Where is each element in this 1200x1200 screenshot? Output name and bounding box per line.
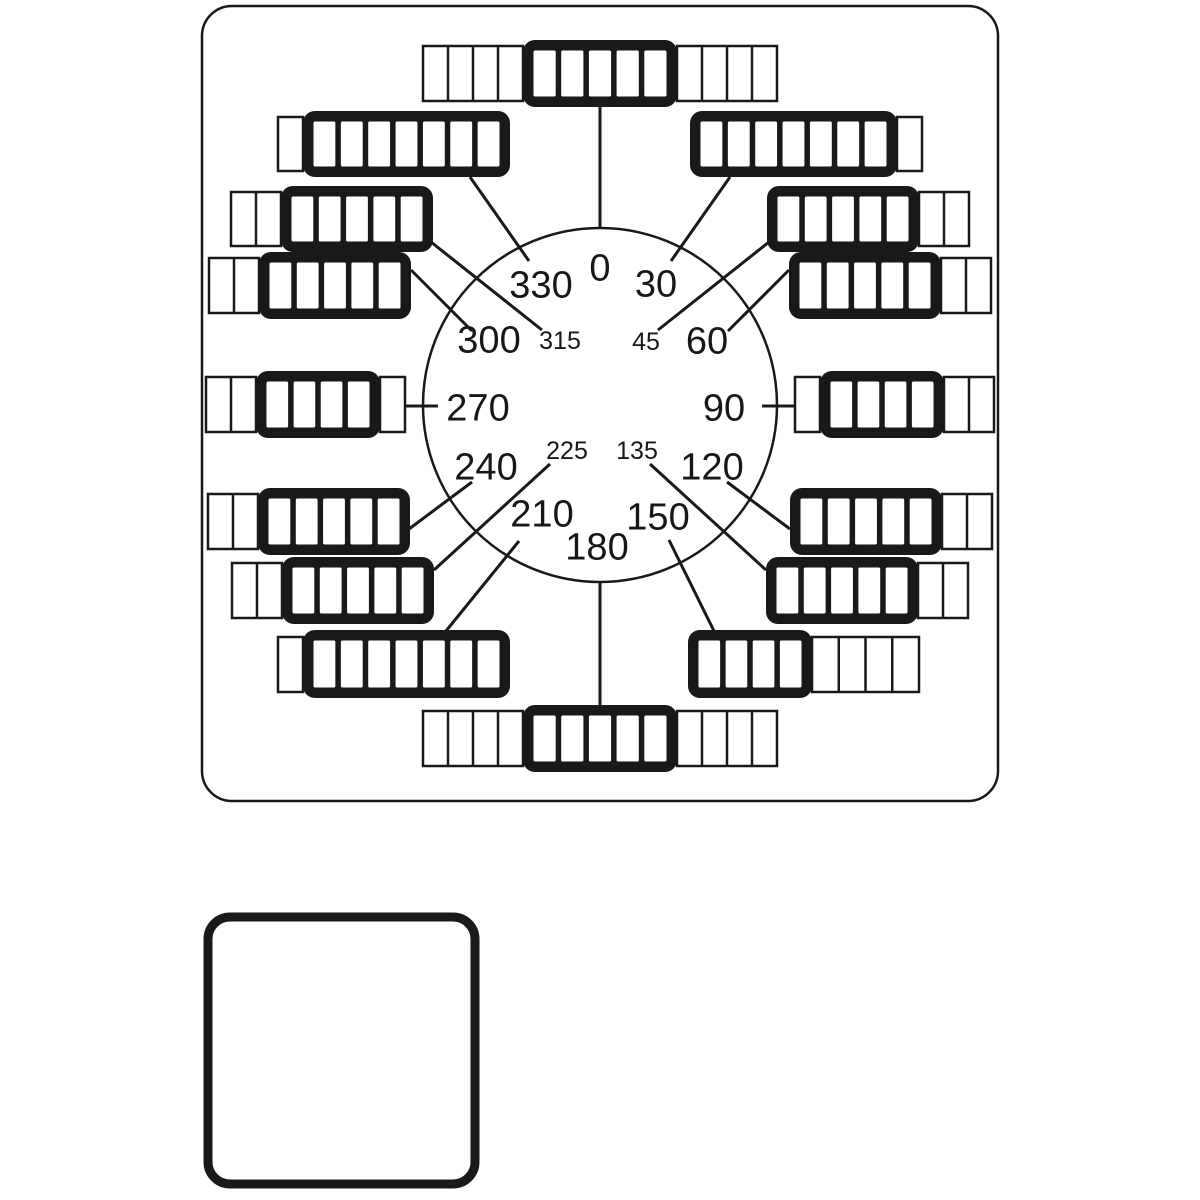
cell <box>701 122 723 167</box>
label-strip-thick-30 <box>690 111 897 177</box>
label-strip-thin-225 <box>232 563 282 618</box>
angle-label-315: 315 <box>539 327 581 355</box>
cell <box>726 641 748 688</box>
label-strip-thick-315 <box>281 186 433 252</box>
angle-label-225: 225 <box>546 437 588 465</box>
cell <box>320 568 342 614</box>
cell <box>912 382 934 428</box>
cell <box>324 263 346 309</box>
thin-strip-frame <box>897 117 922 171</box>
cell <box>341 641 363 688</box>
cell <box>589 51 611 97</box>
cell <box>347 568 369 614</box>
label-strip-thick-60 <box>789 252 941 319</box>
cell <box>859 197 881 242</box>
angle-label-180: 180 <box>565 526 628 568</box>
cell <box>314 122 336 167</box>
cell <box>617 716 639 762</box>
angle-label-135: 135 <box>616 437 658 465</box>
legend-square <box>208 917 475 1184</box>
cell <box>909 263 931 309</box>
angle-label-0: 0 <box>589 247 610 289</box>
cell <box>269 499 291 545</box>
cell <box>368 641 390 688</box>
cell <box>402 568 424 614</box>
cell <box>804 568 826 614</box>
label-strip-thin-240 <box>208 494 258 549</box>
switch-faceplate-diagram: 0304560901201351501802102252402703003153… <box>0 0 1200 1200</box>
cell <box>881 263 903 309</box>
cell <box>323 499 345 545</box>
cell <box>827 263 849 309</box>
label-strip-thick-180 <box>523 705 677 772</box>
label-strip-thick-0 <box>523 40 677 107</box>
cell <box>832 197 854 242</box>
cell <box>294 382 316 428</box>
cell <box>800 263 822 309</box>
cell <box>267 382 289 428</box>
angle-label-45: 45 <box>632 328 660 356</box>
label-strip-thick-210 <box>303 630 510 698</box>
label-strip-thin-45 <box>919 192 969 246</box>
thin-strip-frame <box>380 377 405 432</box>
label-strip-thin-120 <box>942 494 992 549</box>
cell <box>801 499 823 545</box>
cell <box>780 641 802 688</box>
cell <box>292 197 314 242</box>
label-strip-thin-0 <box>677 46 777 101</box>
label-strip-thick-90 <box>820 371 944 438</box>
label-strip-thin-180 <box>677 711 777 766</box>
label-strip-thin-270 <box>380 377 405 432</box>
cell <box>885 382 907 428</box>
label-strip-thin-90 <box>795 377 820 432</box>
cell <box>887 197 909 242</box>
label-strip-thin-90 <box>944 377 994 432</box>
cell <box>855 499 877 545</box>
cell <box>534 716 556 762</box>
cell <box>319 197 341 242</box>
cell <box>351 263 373 309</box>
cell <box>378 499 400 545</box>
cell <box>854 263 876 309</box>
label-strip-thick-300 <box>259 252 411 319</box>
label-strip-thin-60 <box>941 258 991 313</box>
dial-svg: 0304560901201351501802102252402703003153… <box>0 0 1200 1200</box>
cell <box>396 122 418 167</box>
cell <box>423 122 445 167</box>
label-strip-thin-135 <box>918 563 968 618</box>
label-strip-thin-30 <box>897 117 922 171</box>
cell <box>374 568 396 614</box>
cell <box>348 382 370 428</box>
cell <box>910 499 932 545</box>
label-strip-thick-120 <box>790 488 942 555</box>
cell <box>644 716 666 762</box>
label-strip-thick-330 <box>303 111 510 177</box>
cell <box>270 263 292 309</box>
cell <box>865 122 887 167</box>
angle-label-60: 60 <box>686 320 728 362</box>
label-strip-thin-0 <box>423 46 523 101</box>
cell <box>828 499 850 545</box>
angle-label-330: 330 <box>509 264 572 306</box>
cell <box>728 122 750 167</box>
label-strip-thin-270 <box>206 377 256 432</box>
cell <box>886 568 908 614</box>
cell <box>753 641 775 688</box>
cell <box>777 568 799 614</box>
cell <box>423 641 445 688</box>
label-strip-thick-240 <box>258 488 410 555</box>
cell <box>296 499 318 545</box>
cell <box>297 263 319 309</box>
cell <box>882 499 904 545</box>
cell <box>778 197 800 242</box>
cell <box>644 51 666 97</box>
label-strip-thin-330 <box>278 117 303 171</box>
cell <box>478 641 500 688</box>
cell <box>699 641 721 688</box>
cell <box>368 122 390 167</box>
cell <box>561 51 583 97</box>
cell <box>478 122 500 167</box>
cell <box>401 197 423 242</box>
cell <box>589 716 611 762</box>
thin-strip-frame <box>795 377 820 432</box>
cell <box>346 197 368 242</box>
angle-label-90: 90 <box>703 387 745 429</box>
cell <box>450 122 472 167</box>
angle-label-30: 30 <box>635 263 677 305</box>
cell <box>396 641 418 688</box>
angle-label-270: 270 <box>446 387 509 429</box>
label-strip-thick-270 <box>256 371 380 438</box>
cell <box>561 716 583 762</box>
cell <box>314 641 336 688</box>
cell <box>831 382 853 428</box>
angle-label-210: 210 <box>510 493 573 535</box>
cell <box>755 122 777 167</box>
cell <box>373 197 395 242</box>
thin-strip-frame <box>278 637 303 692</box>
angle-label-300: 300 <box>457 319 520 361</box>
label-strip-thin-210 <box>278 637 303 692</box>
thin-strip-frame <box>278 117 303 171</box>
label-strip-thick-135 <box>766 557 918 624</box>
angle-label-240: 240 <box>454 446 517 488</box>
cell <box>831 568 853 614</box>
cell <box>350 499 372 545</box>
cell <box>858 568 880 614</box>
cell <box>341 122 363 167</box>
cell <box>837 122 859 167</box>
cell <box>858 382 880 428</box>
cell <box>321 382 343 428</box>
cell <box>805 197 827 242</box>
label-strip-thick-225 <box>282 557 434 624</box>
label-strip-thick-150 <box>688 630 812 698</box>
cell <box>810 122 832 167</box>
label-strip-thick-45 <box>767 186 919 252</box>
angle-label-150: 150 <box>626 496 689 538</box>
cell <box>379 263 401 309</box>
label-strip-thin-315 <box>231 192 281 246</box>
label-strip-thin-180 <box>423 711 523 766</box>
angle-label-120: 120 <box>680 446 743 488</box>
cell <box>617 51 639 97</box>
cell <box>293 568 315 614</box>
cell <box>783 122 805 167</box>
label-strip-thin-150 <box>812 637 919 692</box>
label-strip-thin-300 <box>209 258 259 313</box>
cell <box>534 51 556 97</box>
cell <box>450 641 472 688</box>
